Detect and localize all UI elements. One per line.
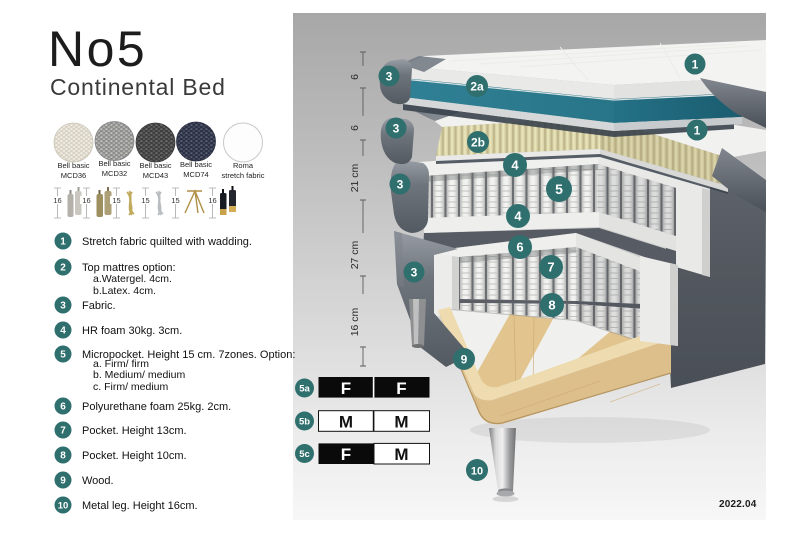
- svg-text:1: 1: [694, 124, 701, 138]
- svg-text:c. Firm/ medium: c. Firm/ medium: [93, 381, 169, 393]
- svg-text:4: 4: [511, 158, 519, 173]
- svg-text:6: 6: [60, 402, 66, 413]
- svg-text:Pocket. Height 13cm.: Pocket. Height 13cm.: [82, 425, 187, 437]
- svg-text:3: 3: [386, 70, 393, 84]
- svg-text:5b: 5b: [299, 417, 310, 428]
- svg-text:10: 10: [58, 501, 69, 512]
- svg-text:a.Watergel. 4cm.: a.Watergel. 4cm.: [93, 273, 172, 285]
- svg-text:Roma: Roma: [233, 161, 254, 170]
- svg-text:6: 6: [349, 125, 361, 131]
- svg-text:5c: 5c: [299, 449, 310, 460]
- svg-text:Metal leg. Height 16cm.: Metal leg. Height 16cm.: [82, 500, 198, 512]
- svg-text:Bell basic: Bell basic: [57, 161, 89, 170]
- svg-text:8: 8: [60, 451, 66, 462]
- svg-text:F: F: [341, 445, 351, 464]
- svg-text:Bell basic: Bell basic: [98, 159, 130, 168]
- svg-text:2b: 2b: [471, 136, 485, 150]
- svg-text:7: 7: [60, 426, 66, 437]
- svg-text:21 cm: 21 cm: [349, 163, 361, 192]
- svg-text:M: M: [394, 413, 408, 432]
- svg-text:2: 2: [60, 263, 66, 274]
- svg-text:Pocket. Height 10cm.: Pocket. Height 10cm.: [82, 450, 187, 462]
- svg-text:MCD43: MCD43: [143, 171, 168, 180]
- svg-text:Wood.: Wood.: [82, 475, 114, 487]
- svg-text:M: M: [394, 445, 408, 464]
- svg-text:3: 3: [393, 122, 400, 136]
- svg-text:Polyurethane foam 25kg. 2cm.: Polyurethane foam 25kg. 2cm.: [82, 401, 231, 413]
- svg-text:MCD74: MCD74: [183, 170, 208, 179]
- svg-text:F: F: [396, 379, 406, 398]
- svg-text:M: M: [339, 413, 353, 432]
- svg-text:9: 9: [461, 353, 468, 367]
- svg-text:1: 1: [60, 237, 66, 248]
- svg-text:Continental Bed: Continental Bed: [50, 74, 226, 100]
- svg-text:3: 3: [397, 178, 404, 192]
- svg-text:HR foam 30kg. 3cm.: HR foam 30kg. 3cm.: [82, 325, 182, 337]
- svg-text:2022.04: 2022.04: [719, 499, 757, 510]
- svg-text:MCD32: MCD32: [102, 169, 127, 178]
- svg-text:5: 5: [555, 181, 563, 197]
- svg-text:Bell basic: Bell basic: [139, 161, 171, 170]
- svg-text:b. Medium/ medium: b. Medium/ medium: [93, 369, 185, 381]
- svg-text:3: 3: [60, 301, 66, 312]
- svg-text:15: 15: [171, 196, 179, 205]
- svg-text:27 cm: 27 cm: [349, 240, 361, 269]
- svg-text:b.Latex. 4cm.: b.Latex. 4cm.: [93, 285, 156, 297]
- svg-text:5a: 5a: [299, 384, 310, 395]
- svg-text:MCD36: MCD36: [61, 171, 86, 180]
- svg-text:6: 6: [349, 74, 361, 80]
- svg-text:15: 15: [141, 196, 149, 205]
- svg-text:2a: 2a: [470, 80, 484, 94]
- svg-text:16: 16: [208, 196, 216, 205]
- svg-text:10: 10: [471, 466, 483, 478]
- svg-text:9: 9: [60, 476, 66, 487]
- svg-text:6: 6: [516, 240, 523, 255]
- svg-text:16: 16: [82, 196, 90, 205]
- svg-text:Stretch fabric quilted with wa: Stretch fabric quilted with wadding.: [82, 236, 252, 248]
- svg-text:Fabric.: Fabric.: [82, 300, 116, 312]
- svg-text:3: 3: [411, 266, 418, 280]
- svg-text:No5: No5: [48, 21, 147, 77]
- svg-text:16 cm: 16 cm: [349, 307, 361, 336]
- svg-text:7: 7: [547, 260, 554, 275]
- svg-text:15: 15: [112, 196, 120, 205]
- svg-text:8: 8: [548, 298, 555, 313]
- svg-text:stretch fabric: stretch fabric: [222, 171, 265, 180]
- svg-text:16: 16: [53, 196, 61, 205]
- svg-text:1: 1: [692, 58, 699, 72]
- svg-text:4: 4: [514, 209, 522, 224]
- svg-text:F: F: [341, 379, 351, 398]
- svg-text:Bell basic: Bell basic: [180, 160, 212, 169]
- svg-text:4: 4: [60, 326, 66, 337]
- svg-text:5: 5: [60, 350, 66, 361]
